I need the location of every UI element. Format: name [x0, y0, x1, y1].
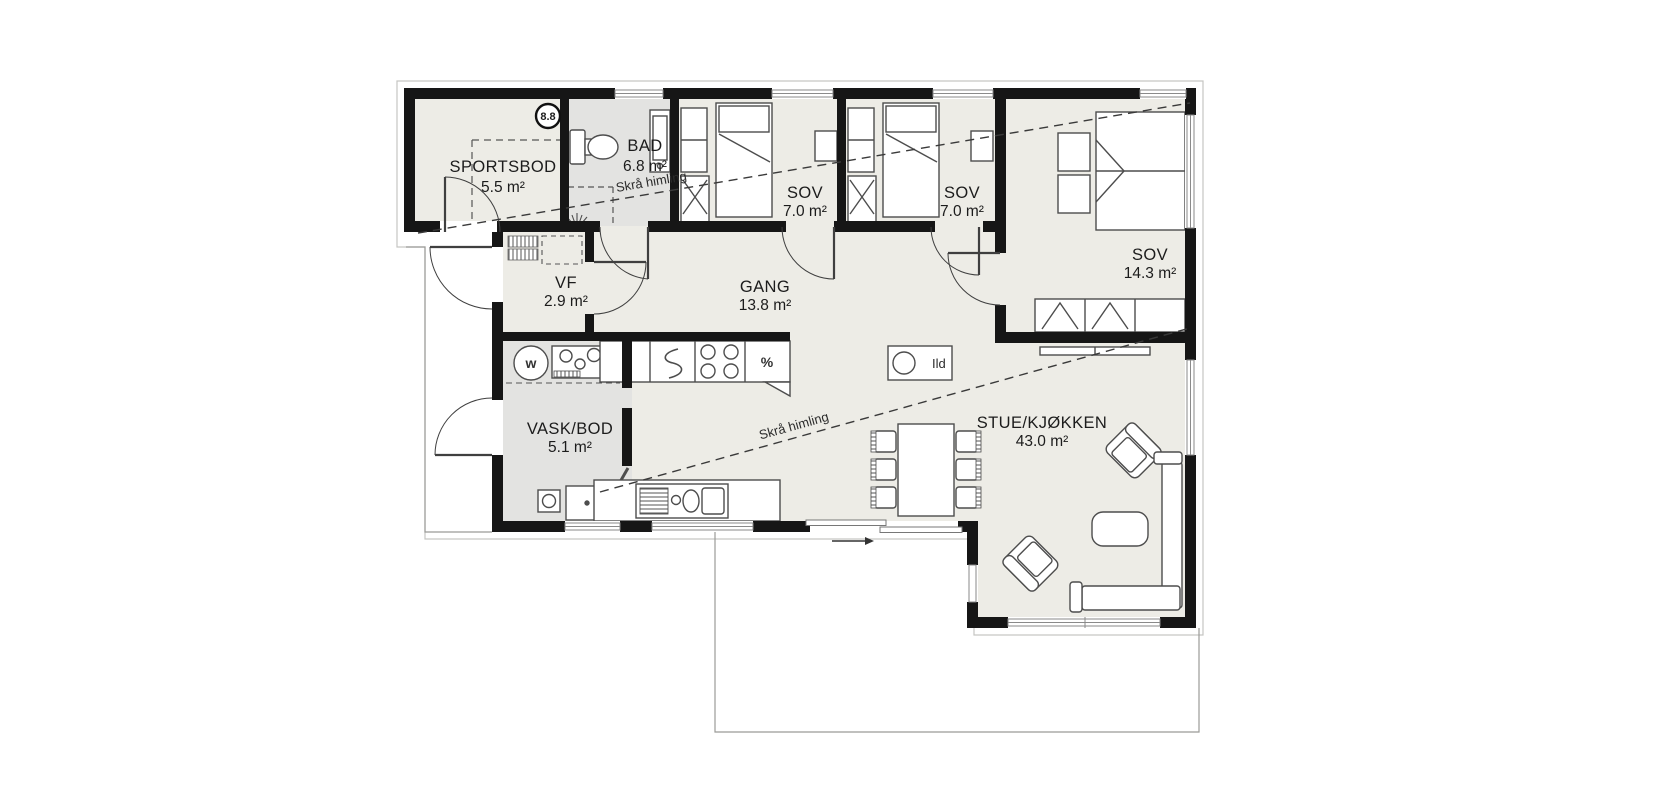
doormat-icon	[508, 249, 538, 260]
doormat-icon	[508, 236, 538, 247]
floor-plan-canvas: SPORTSBOD 5.5 m² BAD 6.8 m² SOV 7.0 m² S…	[0, 0, 1670, 800]
sink-basin-icon	[702, 488, 724, 514]
room-label-sov2: SOV	[944, 184, 980, 202]
fireplace-flue-icon	[893, 352, 915, 374]
entrance-door	[430, 247, 492, 309]
fridge-freezer-label: %	[761, 354, 774, 370]
laundry-exterior-door	[435, 398, 492, 455]
room-area-vf: 2.9 m²	[544, 293, 588, 310]
reference-badge-value: 8.8	[540, 111, 555, 123]
faucet-icon	[672, 496, 681, 505]
room-label-vf: VF	[555, 274, 577, 292]
window	[1140, 88, 1186, 99]
room-area-gang: 13.8 m²	[739, 297, 792, 314]
room-area-sportsbod: 5.5 m²	[481, 179, 525, 196]
window	[933, 88, 993, 99]
shelf-icon	[815, 131, 837, 161]
room-label-gang: GANG	[740, 278, 790, 296]
room-area-stue: 43.0 m²	[1016, 433, 1069, 450]
room-label-sportsbod: SPORTSBOD	[450, 158, 557, 176]
cooktop-burner-icon	[701, 364, 715, 378]
nightstand-icon	[1058, 175, 1090, 213]
room-area-vask: 5.1 m²	[548, 439, 592, 456]
sink-basin-icon	[683, 490, 699, 512]
window	[1185, 115, 1196, 228]
room-area-sov3: 14.3 m²	[1124, 265, 1177, 282]
window	[1185, 360, 1196, 455]
cooktop-burner-icon	[724, 345, 738, 359]
pillow-icon	[719, 106, 769, 132]
nightstand-icon	[1058, 133, 1090, 171]
room-label-bad: BAD	[627, 137, 662, 155]
sliding-door	[806, 520, 962, 545]
window	[652, 521, 753, 532]
window	[615, 88, 663, 99]
washing-machine-label: w	[525, 355, 537, 371]
shelf-icon	[971, 131, 993, 161]
room-label-sov3: SOV	[1132, 246, 1168, 264]
dining-table-icon	[898, 424, 954, 516]
cooktop-burner-icon	[724, 364, 738, 378]
room-area-sov2: 7.0 m²	[940, 203, 984, 220]
arrow-icon	[865, 537, 874, 545]
reference-badge: 8.8	[536, 104, 560, 128]
drainer-icon	[640, 488, 668, 514]
pillow-icon	[886, 106, 936, 132]
room-area-sov1: 7.0 m²	[783, 203, 827, 220]
room-label-sov1: SOV	[787, 184, 823, 202]
fireplace-label: Ild	[932, 356, 946, 371]
room-label-vask: VASK/BOD	[527, 420, 613, 438]
window	[565, 521, 620, 532]
coffee-table-icon	[1092, 512, 1148, 546]
window	[1008, 617, 1160, 628]
room-label-stue: STUE/KJØKKEN	[977, 414, 1107, 432]
window	[967, 565, 978, 602]
window	[772, 88, 833, 99]
cooktop-burner-icon	[701, 345, 715, 359]
dining-set	[871, 424, 981, 516]
appliance-icon	[538, 490, 560, 512]
floor-plan-drawing: SPORTSBOD 5.5 m² BAD 6.8 m² SOV 7.0 m² S…	[0, 0, 1670, 800]
porch-outline	[406, 247, 492, 532]
